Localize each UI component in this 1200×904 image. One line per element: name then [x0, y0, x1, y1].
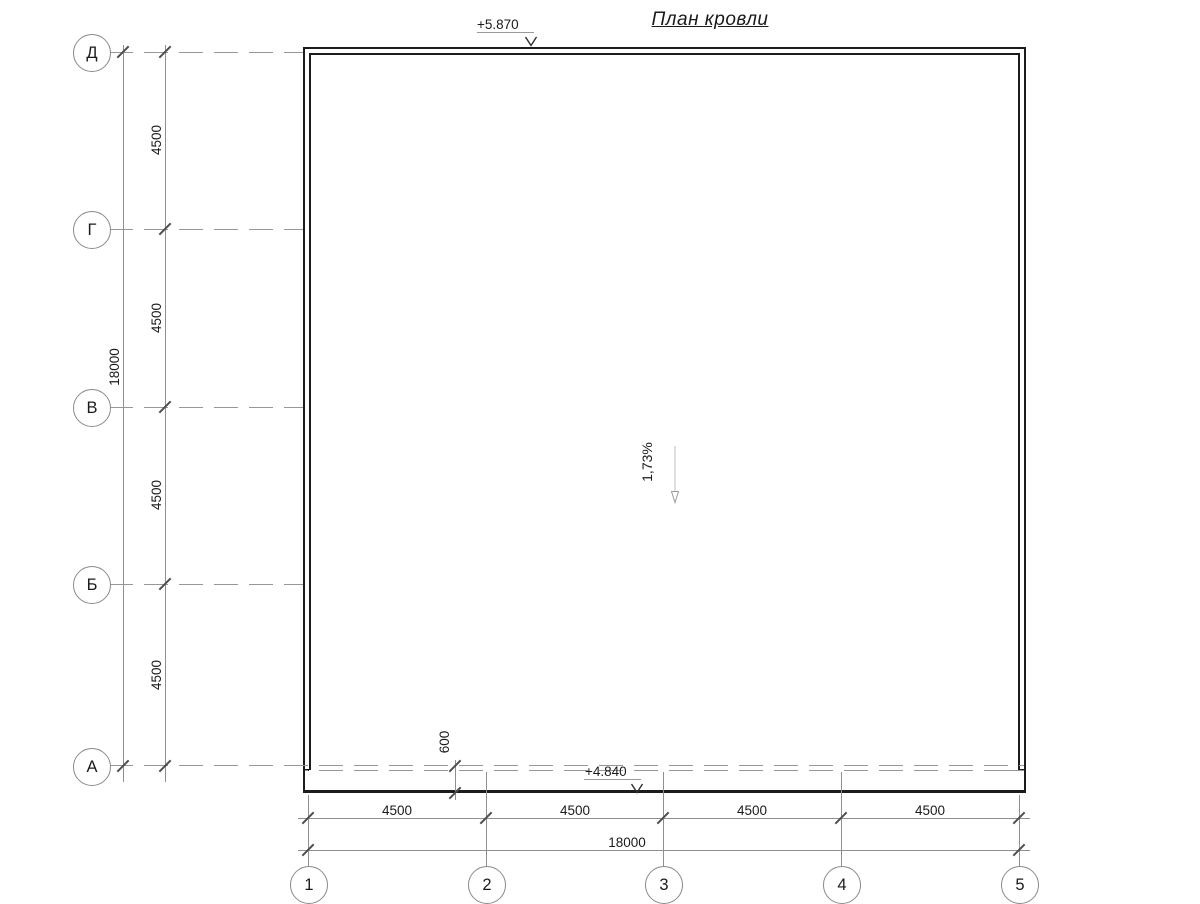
axis-label: 2: [482, 877, 491, 894]
axis-label: 3: [659, 877, 668, 894]
dim-label: 4500: [910, 803, 950, 818]
dim-label-total: 18000: [602, 835, 652, 850]
dim-label: 4500: [732, 803, 772, 818]
elevation-bottom-label: +4.840: [585, 764, 627, 779]
axis-bubble-col-5: 5: [1001, 866, 1039, 904]
axis-label: А: [86, 759, 97, 776]
axis-bubble-col-1: 1: [290, 866, 328, 904]
axis-label: 1: [304, 877, 313, 894]
extension-line-col-4: [841, 772, 842, 867]
axis-bubble-row-a: А: [73, 748, 111, 786]
axis-bubble-row-d: Д: [73, 34, 111, 72]
dim-label-overhang: 600: [437, 702, 453, 782]
axis-label: В: [86, 400, 97, 417]
grid-line-row-g: [109, 229, 303, 230]
dim-label: 4500: [149, 635, 165, 715]
roof-outline-inner: [309, 53, 1020, 770]
extension-line-col-2: [486, 772, 487, 867]
dim-label-total: 18000: [107, 327, 123, 407]
elevation-bottom-leader: [584, 779, 641, 780]
dim-label: 4500: [555, 803, 595, 818]
axis-bubble-row-b: Б: [73, 566, 111, 604]
dim-line-left-total: [123, 45, 124, 782]
extension-line-col-3: [663, 772, 664, 867]
dim-label: 4500: [377, 803, 417, 818]
elevation-top-leader: [477, 32, 534, 33]
elevation-bottom-arrow-icon: [630, 783, 644, 794]
slope-arrow-icon: [669, 446, 681, 504]
grid-line-row-d: [109, 52, 303, 53]
axis-bubble-row-v: В: [73, 389, 111, 427]
axis-label: Г: [88, 222, 97, 239]
slope-label: 1,73%: [639, 422, 655, 502]
grid-line-row-a: [109, 765, 1024, 766]
axis-label: 5: [1015, 877, 1024, 894]
elevation-top-label: +5.870: [477, 17, 519, 32]
grid-line-row-b: [109, 584, 303, 585]
dim-label: 4500: [149, 455, 165, 535]
axis-label: 4: [837, 877, 846, 894]
axis-bubble-col-4: 4: [823, 866, 861, 904]
drawing-title: План кровли: [610, 9, 810, 31]
extension-line-col-5: [1019, 795, 1020, 867]
axis-bubble-col-2: 2: [468, 866, 506, 904]
axis-bubble-row-g: Г: [73, 211, 111, 249]
axis-label: Б: [87, 577, 98, 594]
dim-line-bottom-total: [298, 850, 1030, 851]
dim-line-left-segments: [165, 45, 166, 782]
axis-bubble-col-3: 3: [645, 866, 683, 904]
axis-label: Д: [86, 45, 97, 62]
extension-line-col-1: [308, 795, 309, 867]
wall-hidden-line-row-a: [305, 770, 1024, 771]
dim-label: 4500: [149, 278, 165, 358]
elevation-top-arrow-icon: [524, 36, 538, 47]
dim-label: 4500: [149, 100, 165, 180]
grid-line-row-v: [109, 407, 303, 408]
